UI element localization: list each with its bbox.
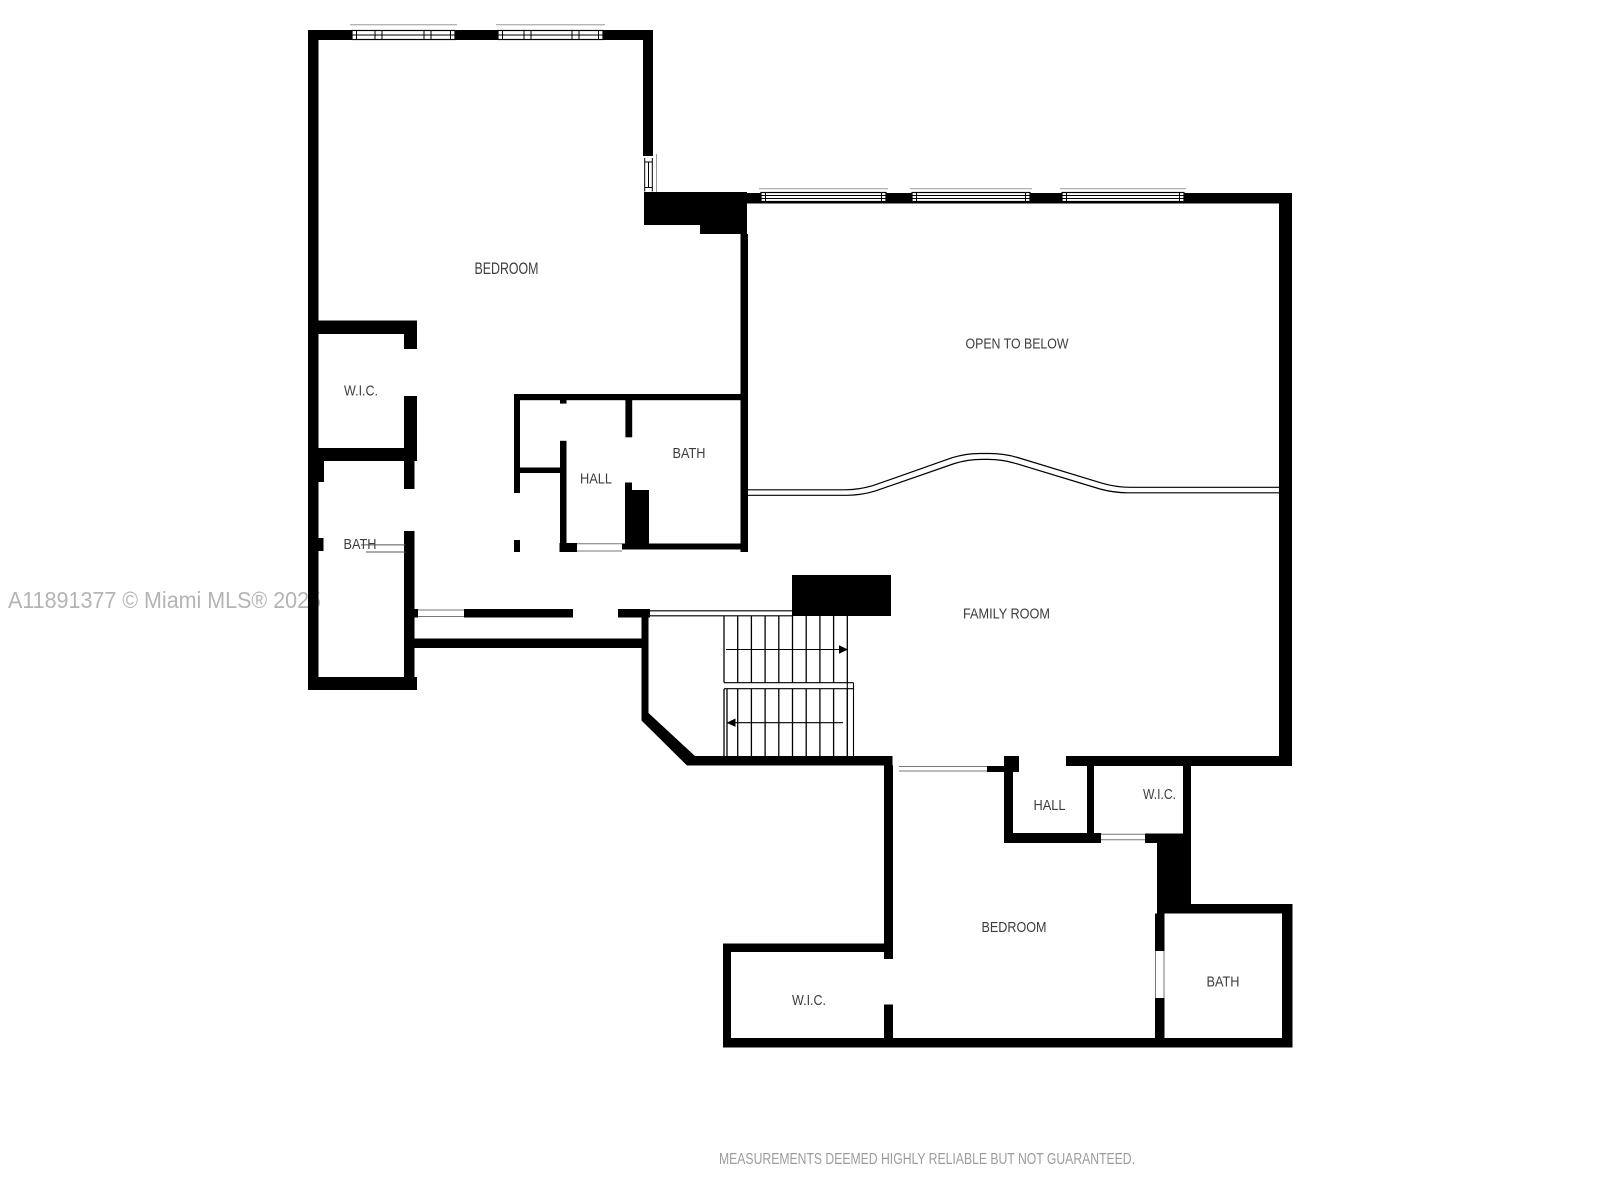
- svg-text:W.I.C.: W.I.C.: [792, 992, 826, 1009]
- svg-text:OPEN TO BELOW: OPEN TO BELOW: [966, 336, 1070, 353]
- svg-text:HALL: HALL: [1034, 797, 1066, 814]
- svg-text:HALL: HALL: [580, 471, 612, 488]
- svg-text:W.I.C.: W.I.C.: [1143, 786, 1176, 803]
- svg-text:W.I.C.: W.I.C.: [344, 383, 378, 400]
- svg-text:A11891377 © Miami MLS® 2025: A11891377 © Miami MLS® 2025: [8, 587, 321, 613]
- svg-text:BATH: BATH: [1207, 974, 1240, 991]
- svg-text:BEDROOM: BEDROOM: [475, 259, 539, 278]
- svg-text:FAMILY ROOM: FAMILY ROOM: [963, 606, 1050, 623]
- svg-text:BATH: BATH: [673, 445, 706, 462]
- svg-text:MEASUREMENTS DEEMED HIGHLY REL: MEASUREMENTS DEEMED HIGHLY RELIABLE BUT …: [719, 1151, 1135, 1168]
- svg-text:BEDROOM: BEDROOM: [982, 919, 1047, 936]
